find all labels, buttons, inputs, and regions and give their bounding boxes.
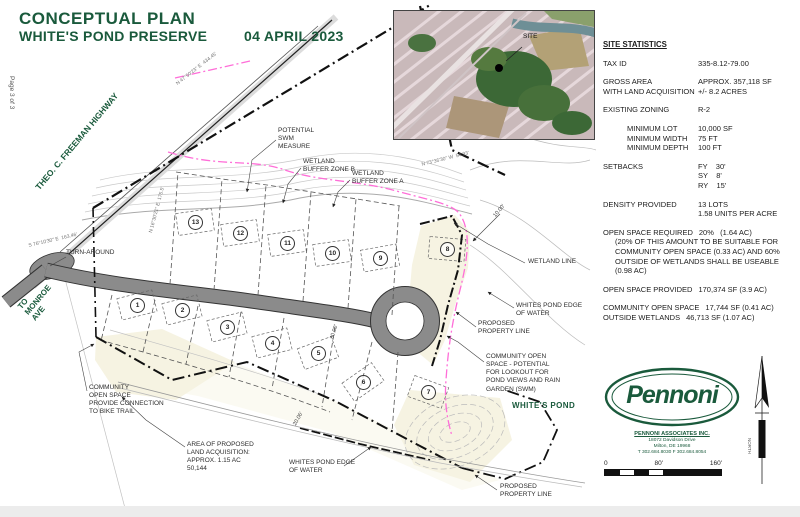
location-map-inset: SITE xyxy=(393,10,595,140)
stat-open-space-note: (20% OF THIS AMOUNT TO BE SUITABLE FOR C… xyxy=(615,237,797,275)
lot-4: 4 xyxy=(265,336,280,351)
stat-open-space-required: OPEN SPACE REQUIRED 20% (1.64 AC) xyxy=(603,228,800,238)
callout-property-line-bottom: PROPOSED PROPERTY LINE xyxy=(500,483,552,499)
stat-zoning: EXISTING ZONING R-2 xyxy=(603,105,800,115)
north-arrow xyxy=(755,356,769,484)
callout-pond-edge-right: WHITES POND EDGE OF WATER xyxy=(516,302,582,318)
callout-potential-swm: POTENTIAL SWM MEASURE xyxy=(278,127,314,151)
plan-date: 04 APRIL 2023 xyxy=(244,28,344,44)
stat-min-depth: MINIMUM DEPTH 100 FT xyxy=(627,143,800,153)
page-number-label: Page 3 of 3 xyxy=(8,76,15,109)
firm-name: PENNONI ASSOCIATES INC. xyxy=(602,431,742,437)
callout-wetland-line: WETLAND LINE xyxy=(528,258,576,266)
lot-8: 8 xyxy=(440,242,455,257)
stat-min-lot: MINIMUM LOT 10,000 SF xyxy=(627,124,800,134)
bottom-margin-strip xyxy=(0,506,800,517)
conceptual-plan-sheet: { "page": { "page_label": "Page 3 of 3" … xyxy=(0,0,800,517)
stat-density: DENSITY PROVIDED 13 LOTS xyxy=(603,200,800,210)
stat-outside-wetlands: OUTSIDE WETLANDS 46,713 SF (1.07 AC) xyxy=(603,313,800,323)
callout-property-line-mid: PROPOSED PROPERTY LINE xyxy=(478,320,530,336)
scale-bar-labels: 0 80' 160' xyxy=(604,460,722,469)
stat-gross-area: GROSS AREA APPROX. 357,118 SF xyxy=(603,77,800,87)
site-statistics-title: SITE STATISTICS xyxy=(603,40,800,50)
stat-gross-area-2: WITH LAND ACQUISITION +/- 8.2 ACRES xyxy=(603,87,800,97)
inset-site-label: SITE xyxy=(523,33,537,40)
stat-density-2: 1.58 UNITS PER ACRE xyxy=(603,209,800,219)
stat-open-space-provided: OPEN SPACE PROVIDED 170,374 SF (3.9 AC) xyxy=(603,285,800,295)
stat-community-open-space: COMMUNITY OPEN SPACE 17,744 SF (0.41 AC) xyxy=(603,303,800,313)
lot-1: 1 xyxy=(130,298,145,313)
lot-2: 2 xyxy=(175,303,190,318)
plan-subtitle: WHITE'S POND PRESERVE xyxy=(19,28,207,44)
callout-turn-around: TURN-AROUND xyxy=(66,249,114,257)
lot-5: 5 xyxy=(311,346,326,361)
lot-3: 3 xyxy=(220,320,235,335)
callout-open-space-lookout: COMMUNITY OPEN SPACE - POTENTIAL FOR LOO… xyxy=(486,353,560,394)
stat-setbacks-ry: RY 15' xyxy=(603,181,800,191)
callout-wetland-buffer-a: WETLAND BUFFER ZONE A xyxy=(352,170,404,186)
lot-13: 13 xyxy=(188,215,203,230)
label-whites-pond: WHITE'S POND xyxy=(512,401,575,410)
callout-land-acquisition: AREA OF PROPOSED LAND ACQUISITION: APPRO… xyxy=(187,441,254,474)
aerial-photo xyxy=(394,11,594,139)
scale-bar-graphic xyxy=(604,469,722,476)
callout-open-space-bike: COMMUNITY OPEN SPACE PROVIDE CONNECTION … xyxy=(89,384,164,417)
callout-wetland-buffer-b: WETLAND BUFFER ZONE B xyxy=(303,158,355,174)
lot-7: 7 xyxy=(421,385,436,400)
pennoni-logo: Pennoni xyxy=(602,366,742,428)
lot-11: 11 xyxy=(280,236,295,251)
lot-10: 10 xyxy=(325,246,340,261)
scale-bar: 0 80' 160' xyxy=(604,460,722,476)
lot-6: 6 xyxy=(356,375,371,390)
lot-12: 12 xyxy=(233,226,248,241)
firm-phone: T 302.684.8030 F 302.684.8054 xyxy=(602,450,742,456)
plan-title: CONCEPTUAL PLAN xyxy=(19,9,195,29)
stat-tax-id: TAX ID 335-8.12-79.00 xyxy=(603,59,800,69)
pennoni-wordmark: Pennoni xyxy=(602,381,742,410)
stat-setbacks-sy: SY 8' xyxy=(603,171,800,181)
site-statistics-panel: SITE STATISTICS TAX ID 335-8.12-79.00 GR… xyxy=(603,40,800,322)
lot-9: 9 xyxy=(373,251,388,266)
stat-min-width: MINIMUM WIDTH 75 FT xyxy=(627,134,800,144)
north-arrow-label: NORTH xyxy=(747,438,752,454)
callout-pond-edge-bottom: WHITES POND EDGE OF WATER xyxy=(289,459,355,475)
stat-setbacks-fy: SETBACKS FY 30' xyxy=(603,162,800,172)
